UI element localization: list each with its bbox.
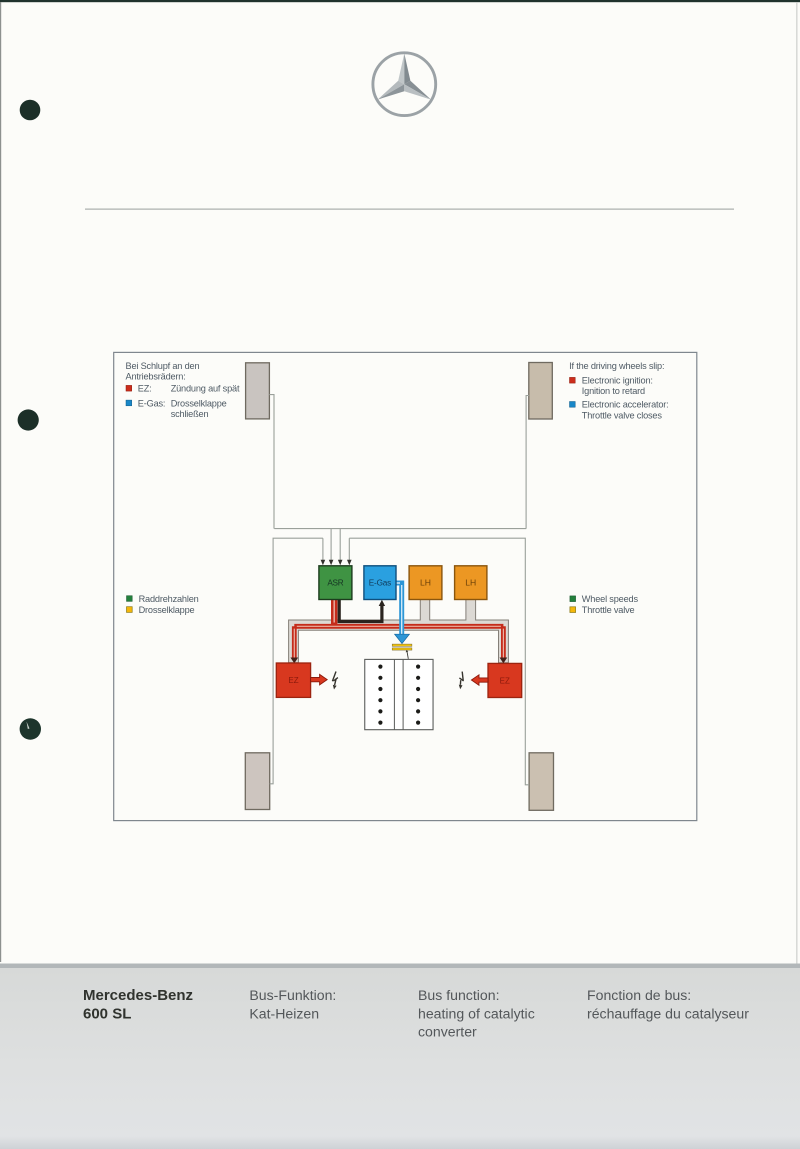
svg-text:Antriebsrädern:: Antriebsrädern:: [126, 372, 186, 382]
svg-text:heating of catalytic: heating of catalytic: [418, 1005, 535, 1021]
svg-text:Kat-Heizen: Kat-Heizen: [249, 1005, 319, 1021]
svg-text:Bus function:: Bus function:: [418, 987, 499, 1003]
svg-text:Electronic accelerator:: Electronic accelerator:: [582, 400, 669, 410]
svg-text:E-Gas:: E-Gas:: [138, 398, 166, 408]
svg-text:Throttle valve: Throttle valve: [582, 605, 635, 615]
svg-text:E-Gas: E-Gas: [369, 578, 391, 587]
svg-text:EZ:: EZ:: [138, 384, 152, 394]
svg-text:EZ: EZ: [288, 676, 298, 685]
svg-text:Drosselklappe: Drosselklappe: [171, 398, 227, 408]
svg-text:converter: converter: [418, 1024, 477, 1040]
svg-text:If the driving wheels slip:: If the driving wheels slip:: [569, 361, 664, 371]
svg-text:Zündung auf spät: Zündung auf spät: [171, 384, 240, 394]
svg-text:Mercedes-Benz: Mercedes-Benz: [83, 987, 193, 1004]
svg-text:schließen: schließen: [171, 409, 209, 419]
svg-text:Bus-Funktion:: Bus-Funktion:: [249, 987, 336, 1003]
svg-text:réchauffage du catalyseur: réchauffage du catalyseur: [587, 1005, 749, 1021]
svg-text:Wheel speeds: Wheel speeds: [582, 594, 639, 604]
svg-text:Fonction de bus:: Fonction de bus:: [587, 987, 691, 1003]
svg-text:Drosselklappe: Drosselklappe: [139, 605, 195, 615]
svg-text:EZ: EZ: [500, 677, 510, 686]
svg-text:LH: LH: [420, 577, 431, 587]
svg-text:Bei Schlupf an den: Bei Schlupf an den: [126, 361, 200, 371]
svg-text:LH: LH: [465, 577, 476, 587]
svg-text:Ignition to retard: Ignition to retard: [582, 386, 645, 396]
svg-text:Raddrehzahlen: Raddrehzahlen: [139, 594, 199, 604]
svg-text:Electronic ignition:: Electronic ignition:: [582, 376, 653, 386]
svg-text:Throttle valve closes: Throttle valve closes: [582, 410, 663, 420]
svg-text:ASR: ASR: [327, 578, 343, 587]
svg-text:600 SL: 600 SL: [83, 1005, 131, 1022]
